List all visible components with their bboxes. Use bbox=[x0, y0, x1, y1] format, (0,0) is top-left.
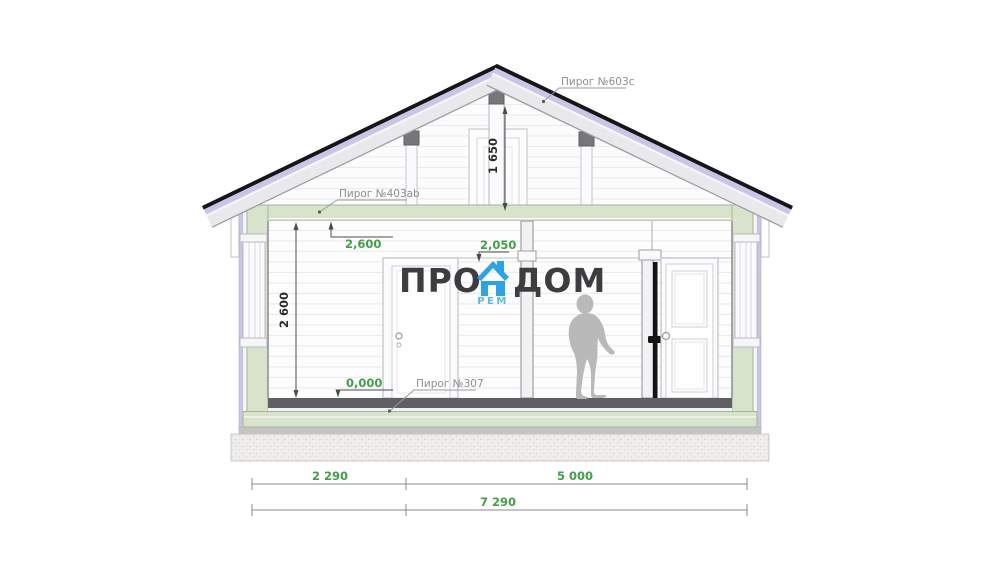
dim-total-span-text: 7 290 bbox=[480, 495, 516, 509]
door-knob bbox=[396, 333, 402, 339]
floor-layer-band bbox=[243, 412, 757, 428]
roof-layer-text: Пирог №603с bbox=[561, 76, 635, 88]
dim-attic-text: 1 650 bbox=[486, 138, 500, 174]
watermark-text-left: ПРО bbox=[399, 261, 482, 300]
floor-deck bbox=[268, 398, 732, 408]
floor-layer-text: Пирог №307 bbox=[416, 378, 484, 390]
floor-base-band bbox=[239, 427, 761, 434]
section-drawing-canvas: ПРО ДОМ РЕМ 1 650 2 600 2,600 2,050 bbox=[0, 0, 1000, 566]
left-wall bbox=[231, 205, 268, 430]
corner-trim-left bbox=[231, 213, 239, 257]
dim-room-text: 2 600 bbox=[277, 292, 291, 328]
dim-right-span-text: 5 000 bbox=[557, 469, 593, 483]
window-section-left bbox=[240, 234, 267, 347]
dim-left-span-text: 2 290 bbox=[312, 469, 348, 483]
level-door-text: 2,050 bbox=[480, 238, 516, 252]
door-handle-mark bbox=[648, 336, 662, 343]
watermark-text-right: ДОМ bbox=[513, 261, 606, 300]
ceiling-layer-text: Пирог №403ab bbox=[339, 188, 420, 200]
panelled-door-right bbox=[661, 258, 718, 398]
door-keyhole bbox=[397, 343, 401, 347]
floor-assembly bbox=[231, 398, 769, 461]
level-ceiling-text: 2,600 bbox=[345, 237, 381, 251]
interior-post-left bbox=[518, 221, 536, 398]
gable-stud-right bbox=[581, 146, 592, 206]
level-floor-text: 0,000 bbox=[346, 376, 382, 390]
architectural-drawing: ПРО ДОМ РЕМ 1 650 2 600 2,600 2,050 bbox=[0, 0, 1000, 566]
window-section-right bbox=[733, 234, 760, 347]
watermark-text-sub: РЕМ bbox=[477, 296, 509, 307]
door-knob bbox=[663, 333, 670, 340]
ceiling-layer-band bbox=[245, 205, 750, 221]
right-wall bbox=[732, 205, 769, 430]
foundation bbox=[231, 434, 769, 461]
